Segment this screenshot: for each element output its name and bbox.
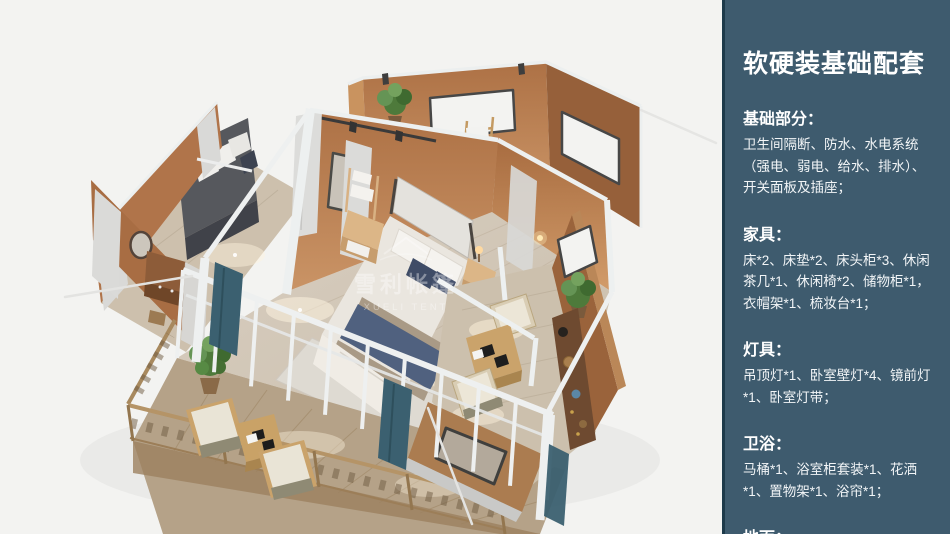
slide: 雪利帐篷 XUELI TENT 软硬装基础配套 基础部分： 卫生间隔断、防水、水… xyxy=(0,0,950,534)
panel-title: 软硬装基础配套 xyxy=(743,44,932,80)
section-flooring: 地面： 强化木地板、卫生间防滑防潮石塑板； xyxy=(743,524,932,534)
section-furniture: 家具： 床*2、床垫*2、床头柜*3、休闲茶几*1、休闲椅*2、储物柜*1，衣帽… xyxy=(743,221,932,315)
section-body: 吊顶灯*1、卧室壁灯*4、镜前灯*1、卧室灯带； xyxy=(743,365,932,408)
curtain xyxy=(506,165,537,276)
table-lamp-icon xyxy=(475,246,483,254)
section-lighting: 灯具： 吊顶灯*1、卧室壁灯*4、镜前灯*1、卧室灯带； xyxy=(743,336,932,408)
section-basics: 基础部分： 卫生间隔断、防水、水电系统（强电、弱电、给水、排水）、开关面板及插座… xyxy=(743,105,932,199)
section-body: 卫生间隔断、防水、水电系统（强电、弱电、给水、排水）、开关面板及插座； xyxy=(743,134,932,199)
section-bathroom: 卫浴： 马桶*1、浴室柜套装*1、花洒*1、置物架*1、浴帘*1； xyxy=(743,430,932,502)
watermark-cn: 雪利帐篷 xyxy=(354,272,458,297)
section-body: 马桶*1、浴室柜套装*1、花洒*1、置物架*1、浴帘*1； xyxy=(743,459,932,502)
section-heading: 灯具： xyxy=(743,336,932,360)
info-panel: 软硬装基础配套 基础部分： 卫生间隔断、防水、水电系统（强电、弱电、给水、排水）… xyxy=(722,0,950,534)
section-heading: 家具： xyxy=(743,221,932,245)
teal-curtain xyxy=(209,262,243,356)
section-heading: 卫浴： xyxy=(743,430,932,454)
section-body: 床*2、床垫*2、床头柜*3、休闲茶几*1、休闲椅*2、储物柜*1，衣帽架*1、… xyxy=(743,250,932,315)
floorplan-illustration: 雪利帐篷 XUELI TENT xyxy=(0,0,722,534)
watermark-en: XUELI TENT xyxy=(364,302,449,313)
section-heading: 基础部分： xyxy=(743,105,932,129)
teal-curtain xyxy=(378,378,412,470)
section-heading: 地面： xyxy=(743,524,932,534)
render-3d-floorplan: 雪利帐篷 XUELI TENT xyxy=(0,0,722,534)
